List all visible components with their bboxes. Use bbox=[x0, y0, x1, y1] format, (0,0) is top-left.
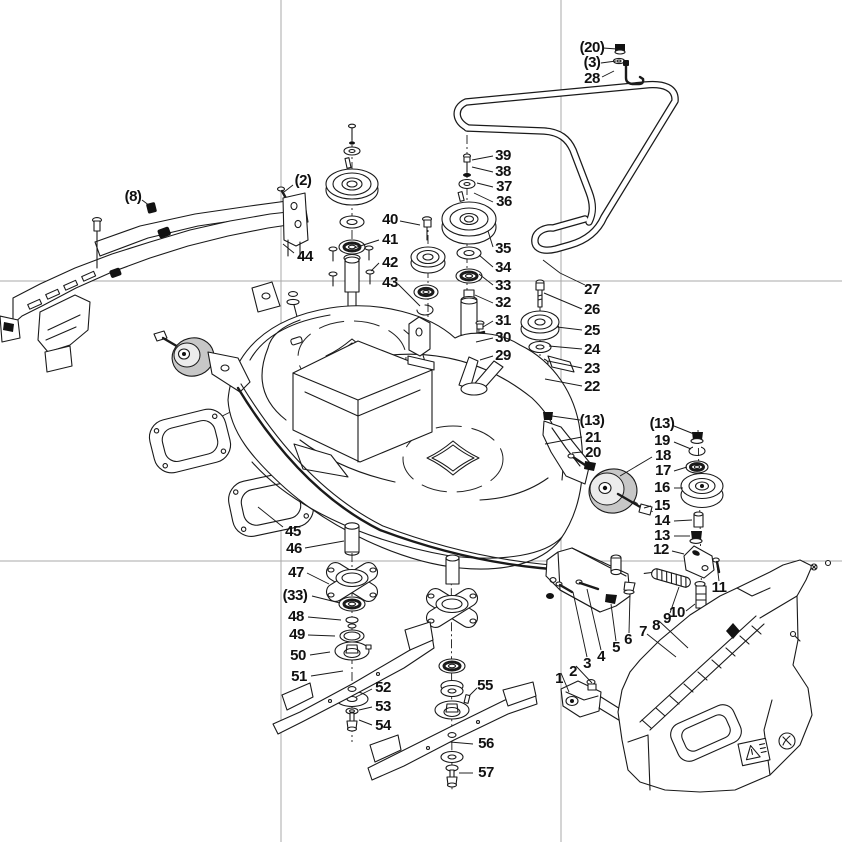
bracket-12 bbox=[684, 546, 714, 578]
emblem-badge bbox=[779, 733, 795, 749]
exploded-view-drawing bbox=[0, 0, 842, 842]
blade-holder-47b bbox=[423, 586, 480, 631]
j-pin-28-hardware bbox=[614, 44, 644, 84]
blade-boss-50 bbox=[335, 642, 371, 660]
rear-roller-wheel bbox=[586, 465, 652, 517]
right-blade-column bbox=[423, 555, 480, 787]
left-spindle-stack bbox=[326, 124, 378, 330]
blade-boss-55-area bbox=[435, 701, 469, 719]
middle-idler-stack bbox=[411, 217, 445, 330]
pivot-bracket-1 bbox=[561, 680, 625, 722]
gasket-ring-1 bbox=[146, 405, 235, 476]
nut-2-target bbox=[546, 593, 554, 599]
nut-13-left bbox=[543, 412, 553, 420]
spring-9 bbox=[644, 566, 692, 589]
rear-housing bbox=[618, 560, 831, 792]
rear-idler-stack bbox=[681, 432, 723, 578]
parts-diagram-page: 12345678910111213141516171819(13)(13)202… bbox=[0, 0, 842, 842]
